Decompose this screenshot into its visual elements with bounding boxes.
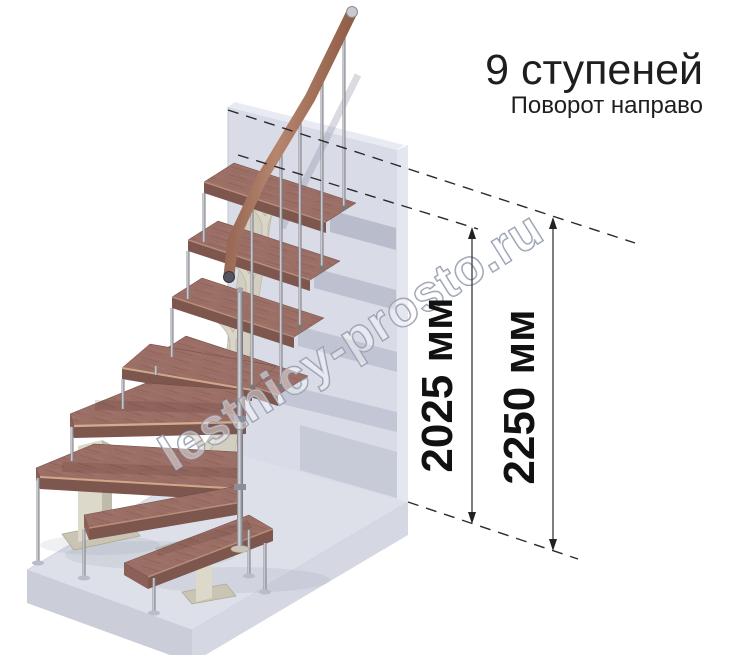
dimension-label-2250: 2250 мм — [495, 309, 544, 484]
dimension-label-2025: 2025 мм — [413, 297, 462, 472]
page-subtitle: Поворот направо — [511, 92, 703, 119]
pole-collar — [234, 484, 246, 490]
staircase-diagram: lestnicy-prosto.ru 2025 мм 2250 мм 9 сту… — [0, 0, 744, 655]
title-block: 9 ступеней Поворот направо — [485, 46, 703, 119]
handrail-end-cap — [224, 272, 235, 283]
page-title: 9 ступеней — [485, 46, 703, 94]
handrail-top-cap — [347, 7, 358, 18]
staircase-diagram-page: lestnicy-prosto.ru 2025 мм 2250 мм 9 сту… — [0, 0, 744, 655]
